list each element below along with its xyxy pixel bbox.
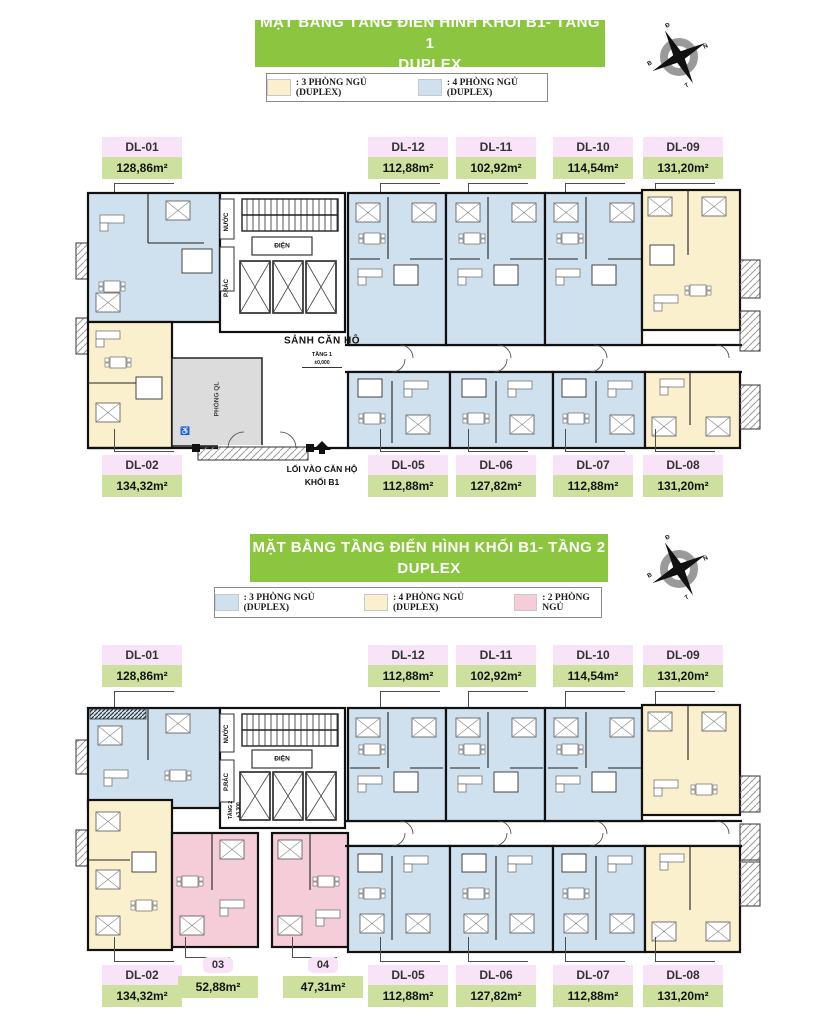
unit-dl08-footprint [645, 372, 740, 448]
unit-id: DL-08 [643, 965, 723, 985]
legend-label: : 3 PHÒNG NGỦ (DUPLEX) [296, 78, 396, 98]
unit-id: DL-05 [368, 965, 448, 985]
unit-id: DL-02 [102, 455, 182, 475]
leader-line [114, 937, 115, 961]
floor2-plan-svg [70, 700, 770, 962]
unit-area: 47,31m² [283, 976, 363, 998]
unit-area: 112,88m² [368, 475, 448, 497]
balcony [740, 385, 760, 429]
balcony [740, 860, 760, 906]
balcony [76, 318, 88, 354]
leader-line [380, 429, 381, 451]
leader-line [468, 961, 528, 962]
unit-area: 112,88m² [368, 985, 448, 1007]
unit-label-dl12: DL-12 112,88m² [368, 645, 448, 687]
unit-id: DL-12 [368, 645, 448, 665]
leader-line [468, 429, 469, 451]
elevation-label: ±0,000 [314, 360, 329, 366]
unit-label-04: 04 47,31m² [283, 957, 363, 998]
unit-id: DL-11 [456, 645, 536, 665]
unit-area: 128,86m² [102, 157, 182, 179]
compass-icon [644, 534, 714, 604]
unit-area: 127,82m² [456, 475, 536, 497]
leader-line [655, 183, 715, 184]
leader-line [565, 451, 625, 452]
balcony-hatch [90, 709, 146, 719]
balcony [76, 243, 88, 279]
accessibility-icon: ♿ [180, 427, 190, 436]
unit-id: DL-02 [102, 965, 182, 985]
unit-label-dl07: DL-07 112,88m² [553, 965, 633, 1007]
floor-tag: TẦNG 1 [312, 352, 332, 358]
legend-swatch-4pn-duplex [418, 79, 442, 96]
water-label: NƯỚC [224, 213, 230, 232]
unit-area: 114,54m² [553, 665, 633, 687]
electric-label: ĐIỆN [274, 756, 290, 763]
unit-label-dl10: DL-10 114,54m² [553, 137, 633, 179]
entry-label-line2: KHỐI B1 [305, 477, 339, 487]
entry-walkway [198, 447, 308, 460]
unit-label-dl06: DL-06 127,82m² [456, 455, 536, 497]
leader-line [185, 937, 186, 957]
leader-line [655, 451, 715, 452]
unit-label-dl08: DL-08 131,20m² [643, 965, 723, 1007]
leader-line [114, 961, 174, 962]
compass-icon [644, 22, 714, 92]
leader-line [380, 451, 440, 452]
compass-rose: Đ N T B [644, 534, 714, 604]
leader-line [380, 183, 440, 184]
unit-area: 112,88m² [368, 665, 448, 687]
leader-line [114, 183, 174, 184]
unit-id: DL-06 [456, 455, 536, 475]
floor1-title-line1: MẶT BẰNG TẦNG ĐIỂN HÌNH KHỐI B1- TẦNG 1 [255, 12, 605, 54]
unit-label-dl05: DL-05 112,88m² [368, 455, 448, 497]
unit-id: DL-01 [102, 137, 182, 157]
unit-area: 131,20m² [643, 157, 723, 179]
unit-label-dl07: DL-07 112,88m² [553, 455, 633, 497]
elevation-label: +3,300 [236, 802, 242, 817]
unit-area: 102,92m² [456, 157, 536, 179]
unit-id: DL-12 [368, 137, 448, 157]
compass-rose: Đ N T B [644, 22, 714, 92]
leader-line [468, 937, 469, 961]
unit-label-dl09: DL-09 131,20m² [643, 645, 723, 687]
leader-line [655, 691, 715, 692]
water-label: NƯỚC [224, 725, 230, 744]
legend-swatch-3pn-duplex [267, 79, 291, 96]
legend-item: : 2 PHÒNG NGỦ [514, 593, 601, 613]
floor1-legend: : 3 PHÒNG NGỦ (DUPLEX) : 4 PHÒNG NGỦ (DU… [266, 73, 548, 102]
unit-id: DL-10 [553, 137, 633, 157]
leader-line [380, 961, 440, 962]
legend-label: : 4 PHÒNG NGỦ (DUPLEX) [447, 78, 547, 98]
unit-id-badge: 04 [308, 957, 338, 973]
balcony [740, 311, 760, 351]
balcony [76, 830, 88, 866]
leader-line [468, 451, 528, 452]
unit-area: 134,32m² [102, 475, 182, 497]
unit-area: 131,20m² [643, 665, 723, 687]
unit-id: DL-01 [102, 645, 182, 665]
leader-line [565, 183, 625, 184]
leader-line [655, 961, 715, 962]
floor-tag: TẦNG 2 [228, 801, 234, 819]
lobby-label: SẢNH CĂN HỘ [284, 336, 360, 347]
legend-swatch-3pn-duplex [215, 594, 239, 611]
unit-area: 112,88m² [368, 157, 448, 179]
legend-item: : 4 PHÒNG NGỦ (DUPLEX) [418, 78, 547, 98]
legend-item: : 3 PHÒNG NGỦ (DUPLEX) [267, 78, 396, 98]
leader-line [565, 429, 566, 451]
unit-area: 128,86m² [102, 665, 182, 687]
leader-line [380, 691, 440, 692]
unit-id: DL-07 [553, 455, 633, 475]
unit-id: DL-09 [643, 137, 723, 157]
floor2-legend: : 3 PHÒNG NGỦ (DUPLEX) : 4 PHÒNG NGỦ (DU… [214, 587, 602, 618]
leader-line [468, 183, 528, 184]
unit-label-dl10: DL-10 114,54m² [553, 645, 633, 687]
leader-line [565, 937, 566, 961]
balcony [76, 740, 88, 774]
unit-label-dl01: DL-01 128,86m² [102, 137, 182, 179]
unit-area: 134,32m² [102, 985, 182, 1007]
elevation-line [302, 367, 342, 368]
unit-label-dl01: DL-01 128,86m² [102, 645, 182, 687]
unit-area: 52,88m² [178, 976, 258, 998]
floor-plan-sheet: MẶT BẰNG TẦNG ĐIỂN HÌNH KHỐI B1- TẦNG 1 … [0, 0, 813, 1024]
legend-item: : 3 PHÒNG NGỦ (DUPLEX) [215, 593, 342, 613]
unit-area: 112,88m² [553, 985, 633, 1007]
legend-label: : 4 PHÒNG NGỦ (DUPLEX) [393, 593, 492, 613]
floor2-title: MẶT BẰNG TẦNG ĐIỂN HÌNH KHỐI B1- TẦNG 2 … [250, 534, 608, 582]
legend-label: : 2 PHÒNG NGỦ [542, 593, 601, 613]
leader-line [565, 961, 625, 962]
unit-area: 131,20m² [643, 985, 723, 1007]
elevators [240, 772, 336, 820]
legend-label: : 3 PHÒNG NGỦ (DUPLEX) [244, 593, 343, 613]
unit-area: 114,54m² [553, 157, 633, 179]
unit-label-dl11: DL-11 102,92m² [456, 137, 536, 179]
unit-label-dl09: DL-09 131,20m² [643, 137, 723, 179]
leader-line [655, 429, 656, 451]
leader-line [468, 691, 528, 692]
trash-label: P.RÁC [224, 279, 230, 297]
entry-arrow-icon [313, 441, 331, 450]
unit-label-dl12: DL-12 112,88m² [368, 137, 448, 179]
unit-label-dl06: DL-06 127,82m² [456, 965, 536, 1007]
unit-id: DL-07 [553, 965, 633, 985]
floor1-title-line2: DUPLEX [255, 54, 605, 75]
unit-label-dl02: DL-02 134,32m² [102, 455, 182, 497]
unit-id-badge: 03 [203, 957, 233, 973]
unit-area: 102,92m² [456, 665, 536, 687]
unit-id: DL-06 [456, 965, 536, 985]
legend-item: : 4 PHÒNG NGỦ (DUPLEX) [364, 593, 491, 613]
entry-arrow-stem [319, 450, 325, 454]
floor1-title: MẶT BẰNG TẦNG ĐIỂN HÌNH KHỐI B1- TẦNG 1 … [255, 20, 605, 67]
legend-swatch-4pn-duplex [364, 594, 388, 611]
management-label: PHÒNG QL [214, 382, 221, 417]
unit-area: 127,82m² [456, 985, 536, 1007]
leader-line [565, 691, 625, 692]
unit-label-dl02: DL-02 134,32m² [102, 965, 182, 1007]
unit-id: DL-09 [643, 645, 723, 665]
floor2-title-line1: MẶT BẰNG TẦNG ĐIỂN HÌNH KHỐI B1- TẦNG 2 [250, 537, 608, 558]
unit-label-03: 03 52,88m² [178, 957, 258, 998]
unit-dl01-footprint [88, 708, 220, 808]
leader-line [655, 937, 656, 961]
leader-line [114, 451, 174, 452]
unit-label-dl08: DL-08 131,20m² [643, 455, 723, 497]
unit-area: 112,88m² [553, 475, 633, 497]
unit-label-dl05: DL-05 112,88m² [368, 965, 448, 1007]
unit-area: 131,20m² [643, 475, 723, 497]
legend-swatch-2pn [514, 594, 538, 611]
floor2-title-line2: DUPLEX [250, 558, 608, 579]
unit-id: DL-10 [553, 645, 633, 665]
leader-line [114, 691, 174, 692]
entry-label-line1: LỐI VÀO CĂN HỘ [287, 464, 358, 474]
elevators [240, 261, 336, 313]
leader-line [380, 937, 381, 961]
unit-id: DL-08 [643, 455, 723, 475]
balcony [740, 824, 760, 862]
unit-id: DL-05 [368, 455, 448, 475]
balcony [740, 260, 760, 298]
trash-label: P.RÁC [224, 773, 230, 791]
floor1-plan-svg [70, 185, 770, 465]
unit-label-dl11: DL-11 102,92m² [456, 645, 536, 687]
leader-line [292, 937, 293, 957]
electric-label: ĐIỆN [274, 243, 290, 250]
unit-id: DL-11 [456, 137, 536, 157]
leader-line [114, 429, 115, 451]
balcony [740, 776, 760, 812]
